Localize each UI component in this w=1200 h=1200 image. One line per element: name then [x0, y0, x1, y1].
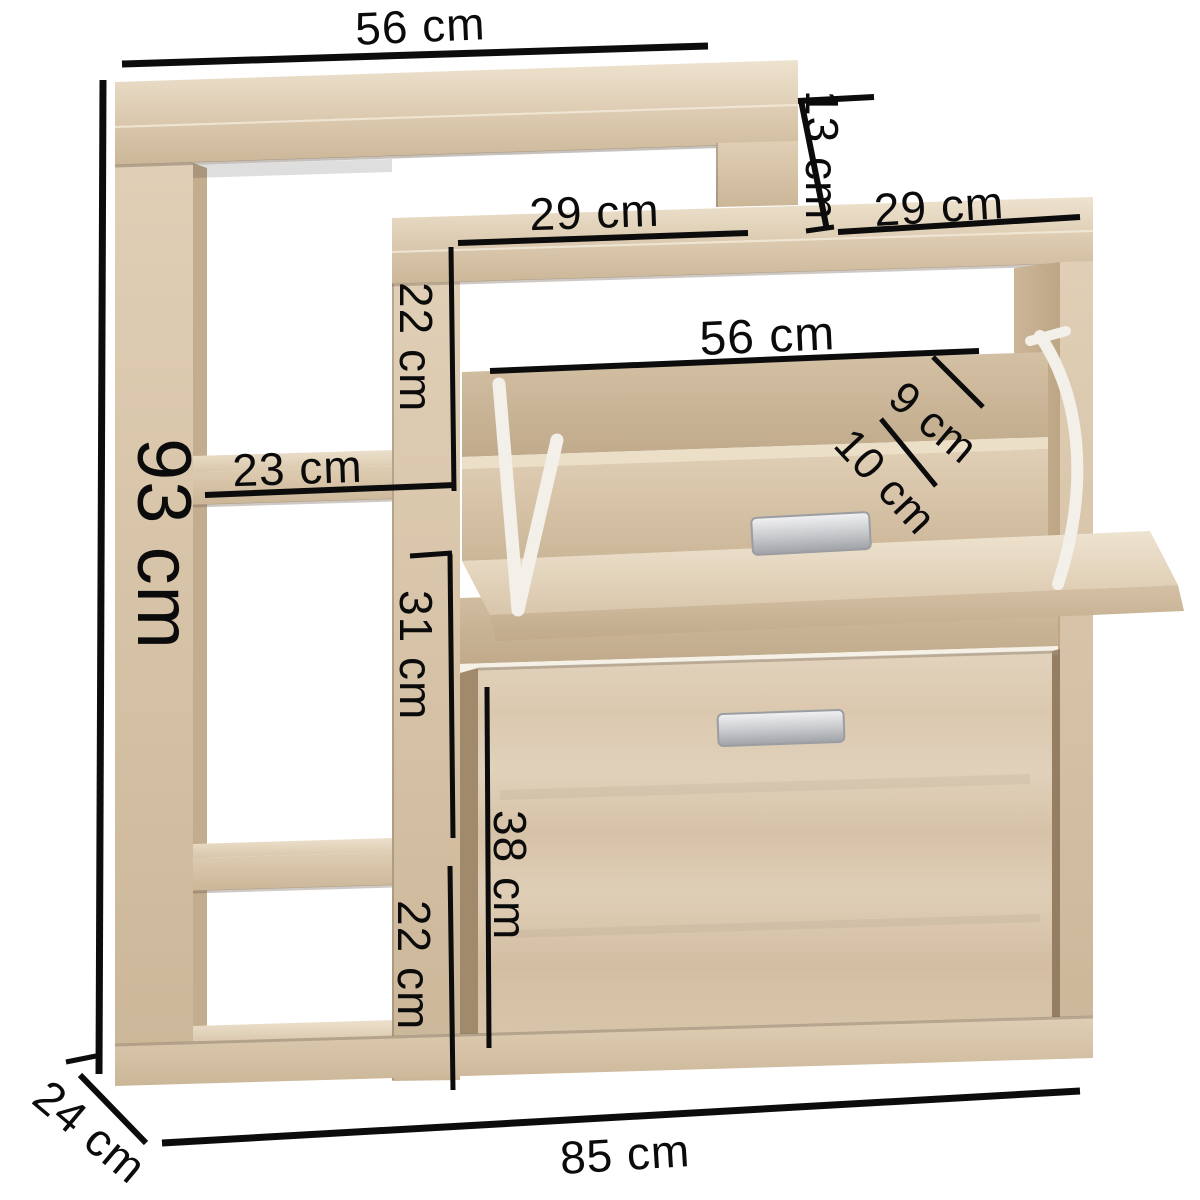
shoe-cabinet-drawing: 56 cm 13 cm 29 cm 29 cm 93 cm 23 cm — [0, 0, 1200, 1200]
dimension-compartment-top-height-label: 22 cm — [390, 282, 442, 412]
door-left-gap — [460, 668, 478, 1058]
flap-handle — [751, 512, 871, 555]
bottom-flap-door — [460, 649, 1060, 1058]
dimension-shelf-depth-right-label: 29 cm — [872, 176, 1005, 236]
dimension-door-height-label: 38 cm — [484, 810, 536, 940]
dimension-flap-width-label: 56 cm — [698, 307, 836, 366]
top-shelf-support-panel — [716, 141, 798, 207]
dimension-top-width: 56 cm — [122, 0, 708, 64]
dimension-total-width-label: 85 cm — [558, 1124, 691, 1184]
dimension-compartment-middle-height-label: 31 cm — [390, 590, 442, 720]
dimension-step-height-label: 13 cm — [796, 90, 848, 220]
dimension-top-width-label: 56 cm — [354, 0, 486, 55]
product-dimension-diagram: 56 cm 13 cm 29 cm 29 cm 93 cm 23 cm — [0, 0, 1200, 1200]
door-panel — [478, 651, 1052, 1053]
dimension-shelf-depth-left-label: 29 cm — [528, 184, 660, 241]
dimension-compartment-bottom-height-label: 22 cm — [388, 900, 440, 1030]
door-handle — [717, 710, 844, 746]
top-shelf — [115, 60, 798, 207]
dimension-total-height-label: 93 cm — [121, 438, 206, 650]
door-right-gap — [1052, 649, 1060, 1040]
dimension-total-width: 85 cm — [162, 1091, 1080, 1184]
dimension-compartment-width-label: 23 cm — [231, 440, 363, 497]
